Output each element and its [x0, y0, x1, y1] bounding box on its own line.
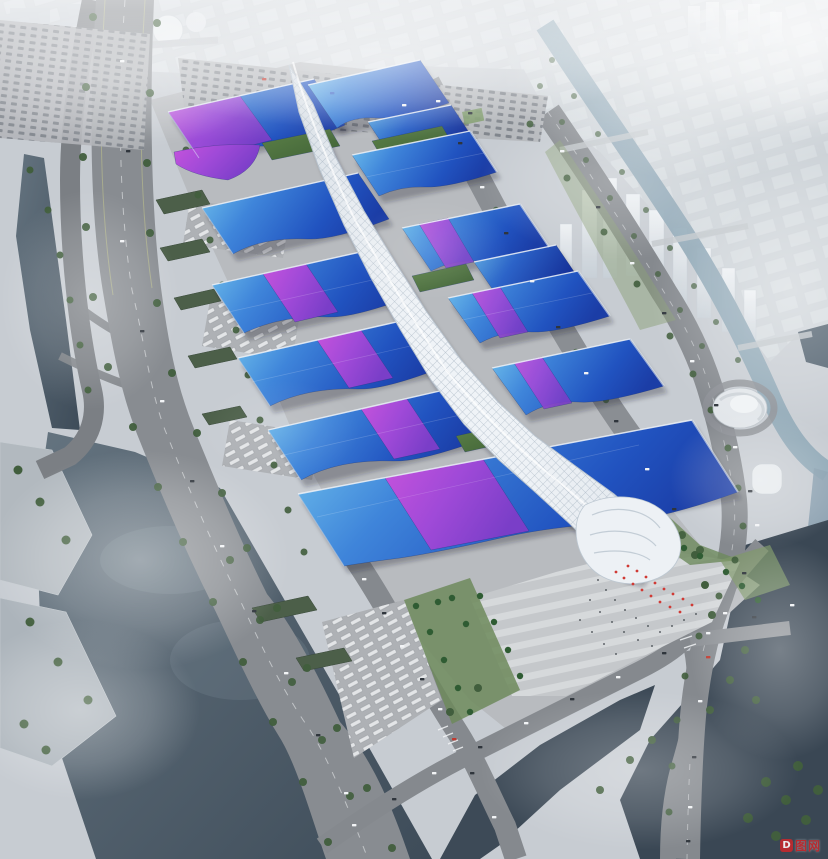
stock-site-watermark: D 图网 — [780, 837, 821, 854]
watermark-logo-icon: D — [780, 839, 793, 852]
watermark-text: 图网 — [795, 837, 821, 854]
aerial-rendering-stage: D 图网 — [0, 0, 828, 859]
aerial-rendering — [0, 0, 828, 859]
